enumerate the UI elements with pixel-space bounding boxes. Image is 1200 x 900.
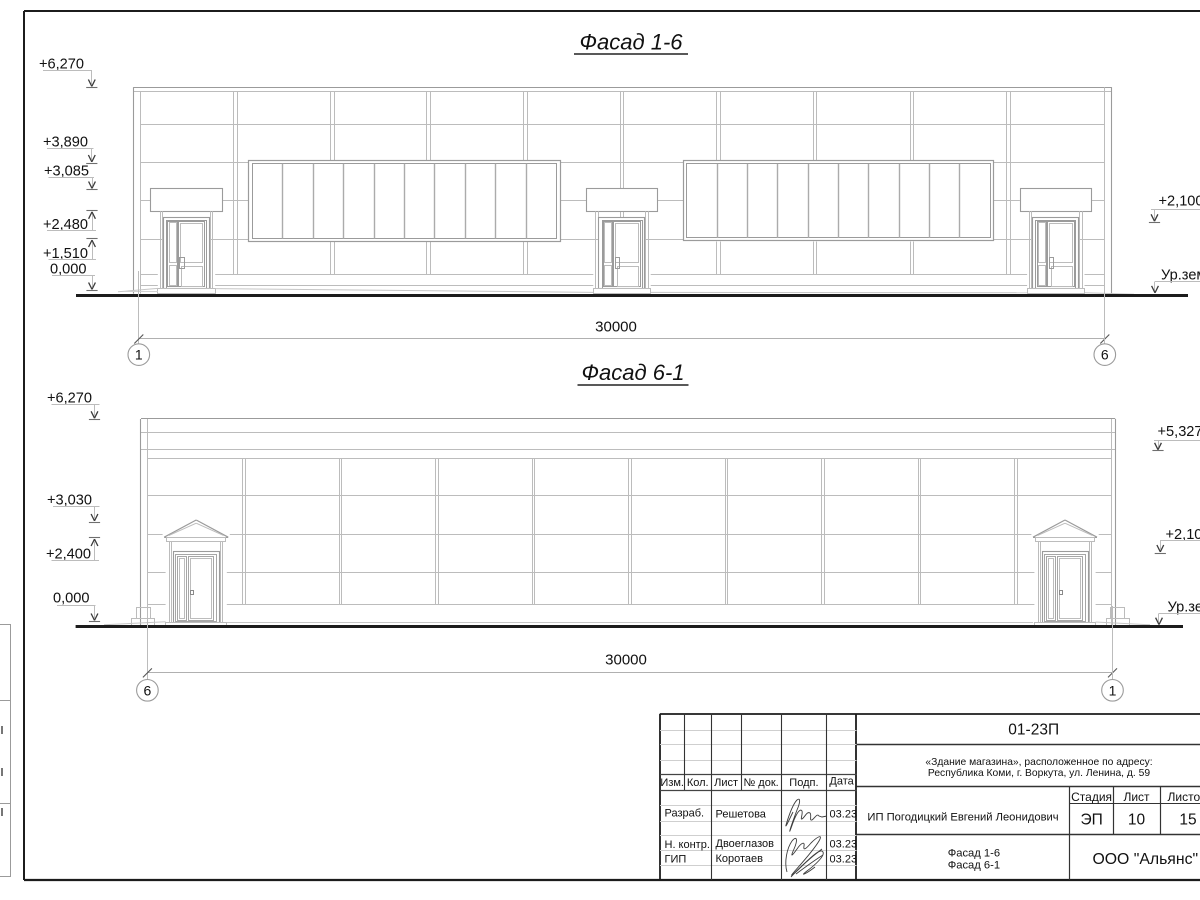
svg-text:03.23: 03.23 [830, 854, 858, 866]
svg-text:0,000: 0,000 [53, 591, 90, 607]
svg-text:03.23: 03.23 [830, 809, 858, 821]
svg-text:6: 6 [1101, 347, 1109, 363]
svg-text:ГИП: ГИП [665, 854, 687, 866]
svg-text:Стадия: Стадия [1071, 790, 1112, 804]
svg-text:«Здание магазина», расположенн: «Здание магазина», расположенное по адре… [925, 757, 1152, 768]
svg-text:Н. контр.: Н. контр. [665, 839, 710, 851]
svg-text:Подп.: Подп. [789, 777, 818, 789]
svg-text:ЭП: ЭП [1080, 812, 1102, 829]
svg-text:Кол.: Кол. [687, 777, 709, 789]
svg-text:Решетова: Решетова [716, 809, 767, 821]
svg-text:01-23П: 01-23П [1008, 722, 1059, 739]
svg-text:Лист: Лист [714, 777, 738, 789]
svg-text:Разраб.: Разраб. [665, 808, 705, 820]
svg-text:Дата: Дата [829, 776, 854, 788]
svg-text:Коротаев: Коротаев [716, 853, 764, 865]
svg-text:03.23: 03.23 [830, 839, 858, 851]
svg-text:Лист: Лист [1123, 790, 1150, 804]
svg-text:Фасад 1-6: Фасад 1-6 [948, 848, 1000, 860]
svg-text:Листов: Листов [1168, 790, 1200, 804]
svg-text:Двоеглазов: Двоеглазов [716, 838, 775, 850]
svg-text:ООО "Альянс": ООО "Альянс" [1092, 851, 1198, 868]
svg-text:Фасад 1-6: Фасад 1-6 [579, 30, 683, 55]
svg-text:Фасад 6-1: Фасад 6-1 [581, 360, 684, 385]
svg-text:Республика Коми, г. Воркута, у: Республика Коми, г. Воркута, ул. Ленина,… [928, 767, 1150, 779]
svg-text:1: 1 [135, 347, 143, 363]
svg-text:15: 15 [1179, 812, 1196, 829]
svg-text:№ док.: № док. [743, 777, 778, 789]
svg-text:30000: 30000 [605, 652, 647, 669]
svg-text:30000: 30000 [595, 319, 637, 336]
svg-text:+2,100: +2,100 [1159, 194, 1200, 210]
svg-text:1: 1 [1109, 682, 1117, 698]
svg-text:Фасад 6-1: Фасад 6-1 [948, 860, 1000, 872]
svg-text:10: 10 [1128, 812, 1146, 829]
svg-text:Изм.: Изм. [660, 777, 684, 789]
svg-text:+5,327: +5,327 [1158, 424, 1200, 440]
svg-text:6: 6 [144, 682, 152, 698]
svg-text:ИП Погодицкий Евгений Леонидов: ИП Погодицкий Евгений Леонидович [867, 812, 1058, 824]
